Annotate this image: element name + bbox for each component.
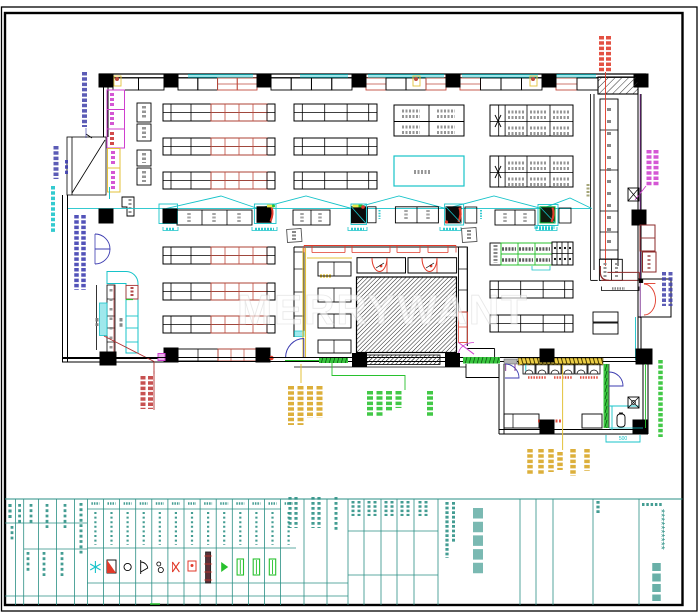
svg-text:MERRYWANT: MERRYWANT <box>237 286 529 333</box>
svg-text:500: 500 <box>619 436 628 442</box>
svg-text:**********: ********** <box>655 509 667 550</box>
